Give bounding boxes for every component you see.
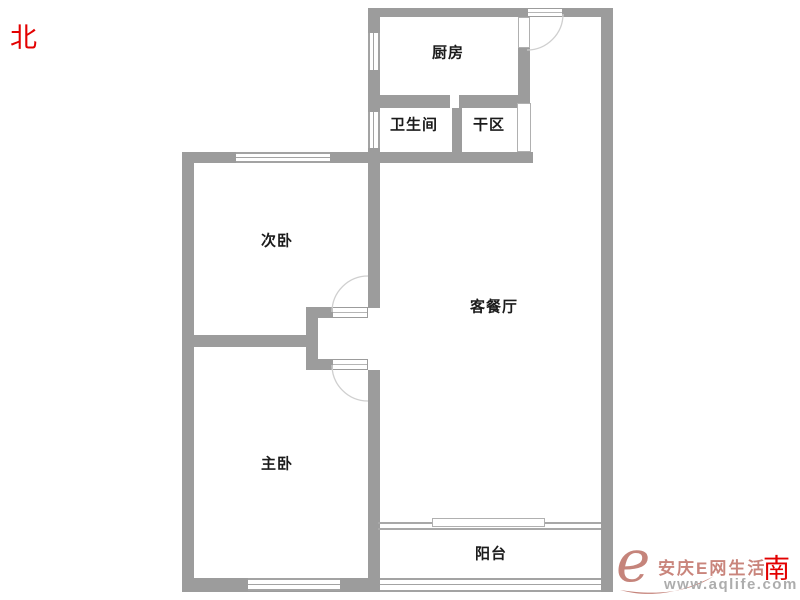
entrance-door-arc xyxy=(527,14,563,50)
master-bedroom-door-arc xyxy=(332,365,368,401)
compass-south-label: 南 xyxy=(763,556,790,583)
compass-north-label: 北 xyxy=(10,25,37,52)
second-bedroom-door-arc xyxy=(332,276,368,312)
door-arc-layer xyxy=(0,0,800,600)
floor-plan: 厨房 卫生间 干区 次卧 客餐厅 主卧 阳台 北 南 e 安庆E网生活 www.… xyxy=(0,0,800,600)
